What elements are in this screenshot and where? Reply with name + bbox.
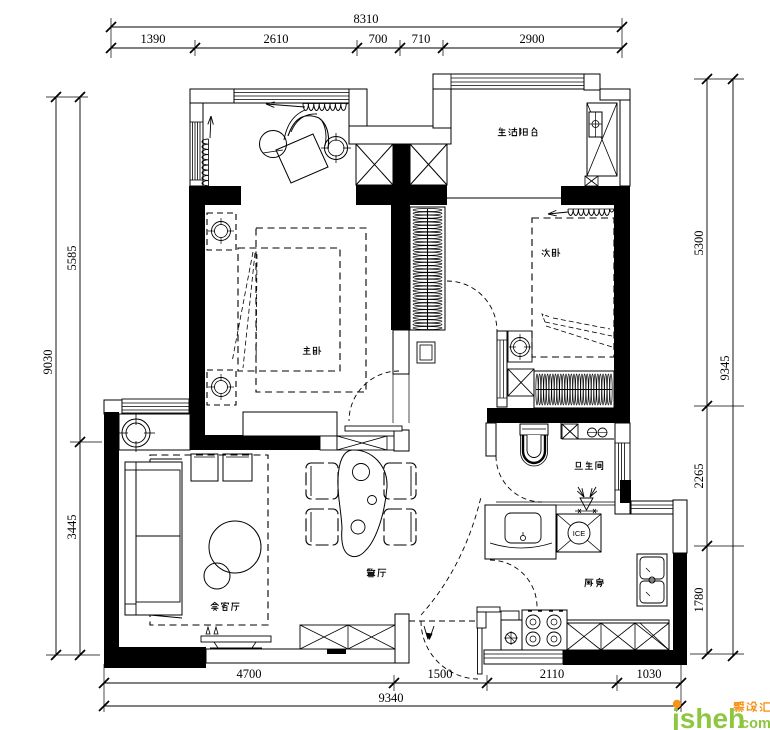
svg-text:1030: 1030 (637, 667, 662, 681)
svg-text:9340: 9340 (379, 691, 404, 705)
svg-text:5300: 5300 (692, 231, 706, 256)
svg-text:5585: 5585 (65, 246, 79, 271)
svg-text:ICE: ICE (573, 529, 586, 538)
svg-text:9030: 9030 (41, 350, 55, 375)
svg-text:3445: 3445 (65, 515, 79, 540)
svg-text:710: 710 (412, 32, 431, 46)
svg-text:2900: 2900 (520, 32, 545, 46)
svg-text:4700: 4700 (237, 667, 262, 681)
svg-text:2610: 2610 (264, 32, 289, 46)
svg-text:700: 700 (369, 32, 388, 46)
svg-text:2265: 2265 (692, 464, 706, 489)
svg-text:8310: 8310 (354, 12, 379, 26)
svg-text:.com: .com (737, 716, 770, 730)
svg-text:1780: 1780 (692, 588, 706, 613)
svg-text:9345: 9345 (718, 356, 732, 381)
svg-text:2110: 2110 (540, 667, 565, 681)
svg-text:1390: 1390 (141, 32, 166, 46)
svg-text:1500: 1500 (428, 667, 453, 681)
